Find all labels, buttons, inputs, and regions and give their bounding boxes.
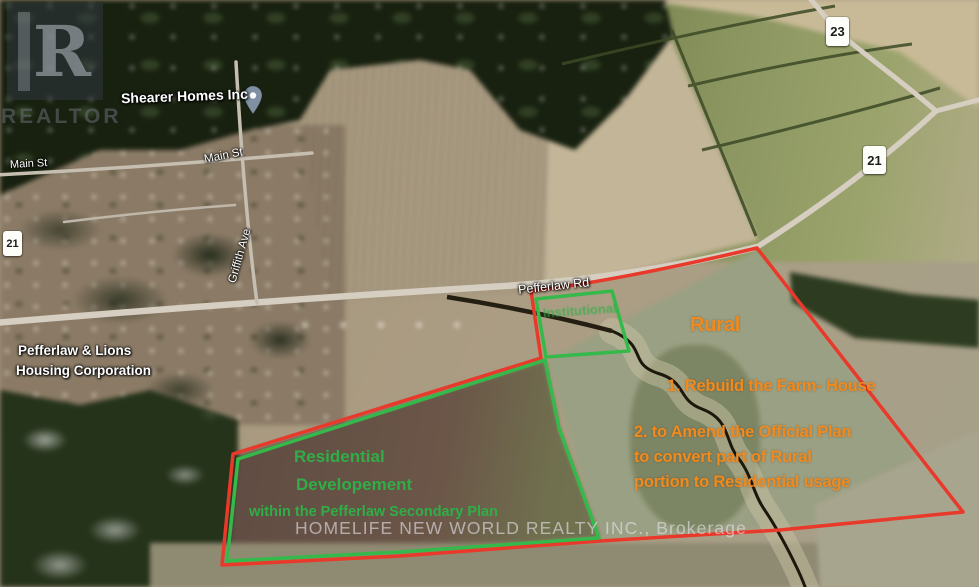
- realtor-logo-word: REALTOR: [1, 105, 122, 129]
- realtor-logo-letter: R: [33, 17, 91, 87]
- realtor-logo: R: [7, 3, 103, 100]
- road-badge-21-right: 21: [863, 146, 886, 174]
- amend-plan-note-line1: 2. to Amend the Official Plan: [634, 423, 851, 442]
- brokerage-watermark: HOMELIFE NEW WORLD REALTY INC., Brokerag…: [295, 518, 747, 539]
- aerial-listing-photo: R REALTOR Shearer Homes Inc Main St Main…: [0, 0, 979, 587]
- realtor-logo-bar: [18, 12, 30, 91]
- amend-plan-note-line3: portion to Residential usage: [634, 473, 850, 492]
- residential-label-line1: Residential: [294, 447, 385, 467]
- main-st-left-label: Main St: [10, 157, 48, 171]
- amend-plan-note-line2: to convert part of Rural: [634, 448, 812, 467]
- residential-label-line2: Developement: [296, 475, 412, 495]
- town-lane: [64, 205, 235, 222]
- rural-label: Rural: [690, 314, 740, 337]
- roads: [0, 0, 979, 323]
- road-badge-21-left: 21: [3, 231, 22, 256]
- pefferlaw-road-line: [0, 247, 757, 323]
- housing-corp-label-line1: Pefferlaw & Lions: [18, 343, 131, 358]
- road-badge-23: 23: [826, 17, 849, 46]
- rebuild-farmhouse-note: 1. Rebuild the Farm- House: [667, 377, 875, 396]
- hedgerows: [562, 6, 940, 236]
- map-overlay: [0, 0, 979, 587]
- housing-corp-label-line2: Housing Corporation: [16, 363, 151, 378]
- junction-east-road: [936, 99, 979, 111]
